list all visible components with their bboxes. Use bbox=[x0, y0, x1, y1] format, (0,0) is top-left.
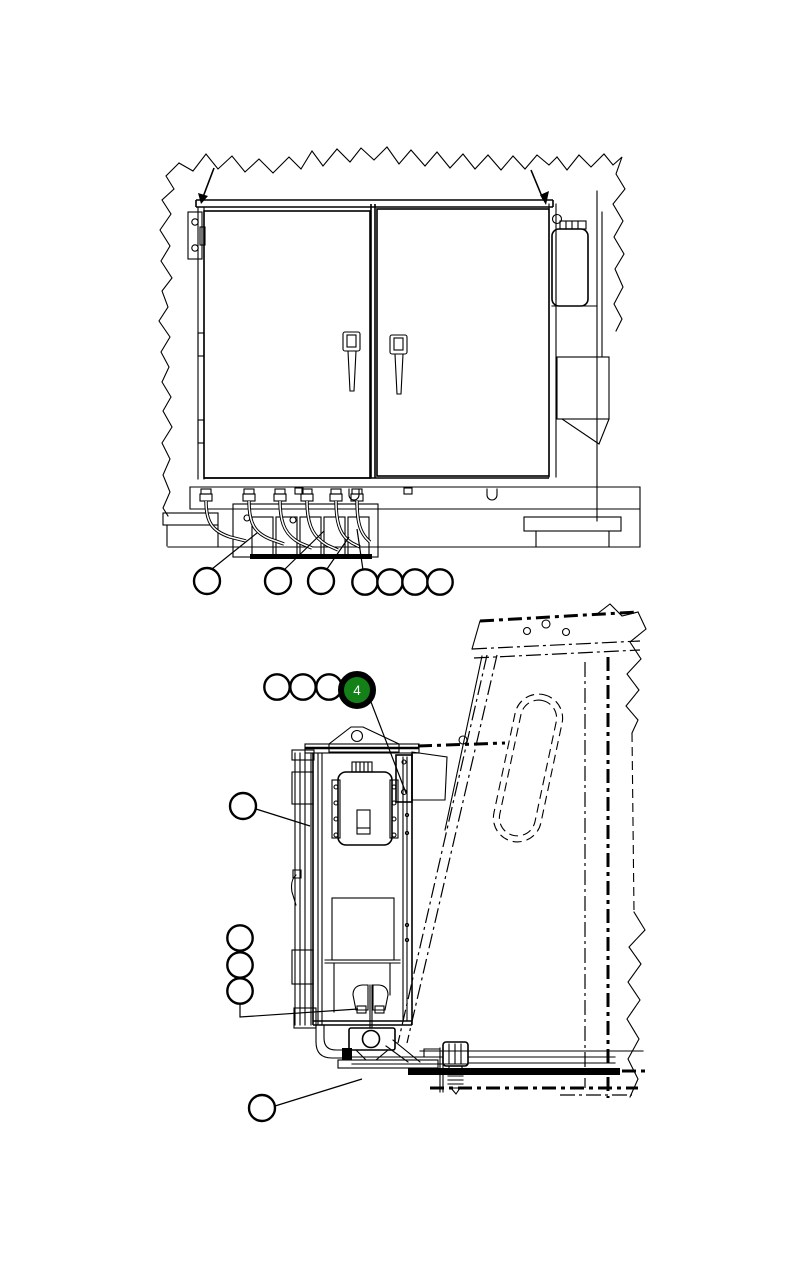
figure-top-cabinet bbox=[159, 147, 640, 595]
callout-balloon-empty[interactable] bbox=[352, 569, 377, 594]
callout-balloon-empty[interactable] bbox=[194, 568, 220, 594]
callout-4-label: 4 bbox=[353, 683, 361, 698]
frame-obround-cutout bbox=[489, 690, 567, 847]
callout-balloon-empty[interactable] bbox=[249, 1095, 275, 1121]
door-handle-left bbox=[343, 332, 360, 391]
hinge-plate bbox=[188, 212, 205, 443]
parts-diagram-canvas: 4 bbox=[0, 0, 786, 1271]
callout-balloon-empty[interactable] bbox=[227, 925, 252, 950]
callout-leader bbox=[240, 1004, 358, 1017]
vehicle-frame-phantom bbox=[398, 604, 646, 1098]
component-body bbox=[313, 753, 412, 1025]
mounting-bracket-right bbox=[396, 752, 447, 802]
callout-balloon-empty[interactable] bbox=[227, 978, 252, 1003]
cabinet-left-door bbox=[204, 211, 370, 478]
mounted-component bbox=[292, 727, 448, 1068]
callout-leader bbox=[256, 809, 310, 826]
callout-balloon-empty[interactable] bbox=[427, 569, 452, 594]
callout-balloon-empty[interactable] bbox=[377, 569, 402, 594]
side-canister bbox=[552, 215, 597, 307]
callout-balloon-empty[interactable] bbox=[402, 569, 427, 594]
callout-balloon-empty[interactable] bbox=[316, 674, 341, 699]
callout-balloon-4-selected[interactable]: 4 bbox=[341, 674, 373, 706]
callout-balloon-empty[interactable] bbox=[227, 952, 252, 977]
side-junction-box bbox=[557, 357, 609, 419]
callout-balloon-empty[interactable] bbox=[290, 674, 315, 699]
figure-bottom-assembly: 4 bbox=[227, 604, 648, 1121]
corner-arrow-left bbox=[198, 168, 214, 204]
break-line-border bbox=[159, 147, 625, 516]
callout-balloon-empty[interactable] bbox=[265, 568, 291, 594]
callout-balloon-empty[interactable] bbox=[308, 568, 334, 594]
callout-balloon-empty[interactable] bbox=[264, 674, 289, 699]
inner-panel bbox=[325, 898, 400, 1012]
callout-balloon-empty[interactable] bbox=[230, 793, 256, 819]
fitting bbox=[200, 489, 363, 501]
cabinet-shell bbox=[196, 200, 556, 479]
door-handle-right bbox=[390, 335, 407, 394]
access-cover-plate bbox=[332, 762, 398, 845]
callout-leader bbox=[327, 537, 349, 569]
break-line-right bbox=[597, 604, 646, 1097]
parts-diagram-page: 4 bbox=[0, 0, 786, 1271]
callout-leader bbox=[275, 1079, 362, 1106]
side-frame-post bbox=[557, 191, 609, 521]
